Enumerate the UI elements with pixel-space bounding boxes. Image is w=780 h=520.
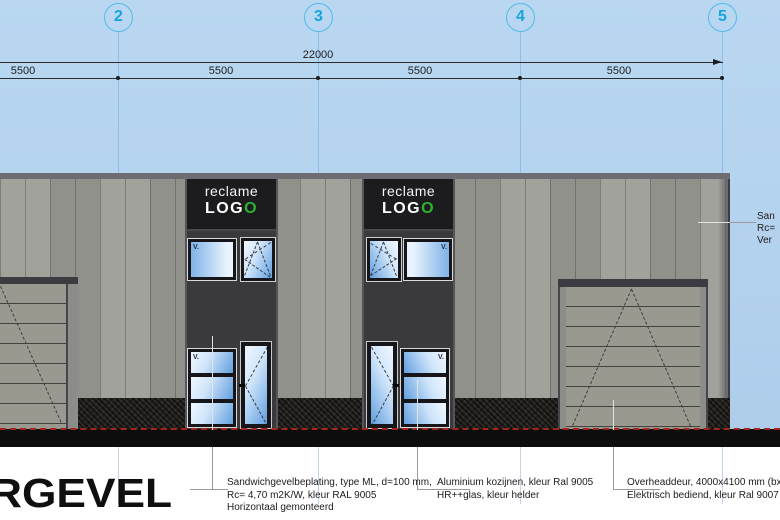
dimension-label-bay-3: 5500: [392, 65, 448, 77]
door-swing-mark: [371, 386, 393, 424]
annotation-overhead-door: Overheaddeur, 4000x4100 mm (bxh) Elektri…: [627, 477, 780, 502]
logo-green-o: O: [244, 200, 258, 217]
overhead-door-right-jamb-left: [558, 287, 566, 430]
glass: [404, 377, 446, 398]
sign-text-logo: LOGO: [187, 200, 276, 218]
dimension-label-bay-4: 5500: [591, 65, 647, 77]
glass: [245, 346, 267, 424]
drawing-title: RGEVEL: [0, 470, 172, 517]
glass: [371, 346, 393, 424]
logo-green-o: O: [421, 200, 435, 217]
plinth: [708, 398, 730, 430]
annotation-aluminium-frames: Aluminium kozijnen, kleur Ral 9005 HR++g…: [437, 477, 593, 502]
plinth: [278, 398, 362, 430]
door-swing-mark: [371, 347, 393, 387]
glass: V.: [407, 242, 449, 277]
leader-line: [613, 447, 614, 490]
dimension-tick: [518, 76, 522, 80]
annotation-line: Rc=: [757, 223, 775, 235]
ground-band: [0, 429, 780, 447]
leader-line: [730, 222, 756, 223]
door-handle: [239, 384, 245, 387]
annotation-line: HR++glas, kleur helder: [437, 490, 593, 503]
overhead-door-right-lintel: [558, 279, 708, 287]
overhead-door-right: [566, 287, 700, 430]
glass: V.: [191, 242, 233, 277]
dimension-label-bay-2: 5500: [193, 65, 249, 77]
grid-line-5: [722, 31, 723, 173]
leader-line: [212, 447, 213, 490]
sign-text-logo: LOGO: [364, 200, 453, 218]
upper-window-vent: [366, 237, 402, 282]
dimension-label-total: 22000: [288, 49, 348, 61]
grid-bubble-5: 5: [708, 3, 737, 32]
grid-bubble-4: 4: [506, 3, 535, 32]
annotation-line: Horizontaal gemonteerd: [227, 502, 432, 515]
glass: V.: [404, 352, 446, 373]
entrance-section-1: reclame LOGO V. V.: [185, 179, 278, 430]
dimension-label-bay-1: 5500: [0, 65, 51, 77]
overhead-door-right-jamb-right: [700, 287, 708, 430]
door-swing-mark: [245, 386, 267, 424]
dimension-line-bays: [0, 78, 723, 79]
plinth: [78, 398, 185, 430]
entry-door: [366, 341, 398, 429]
leader-line: [698, 222, 730, 223]
glass: [404, 403, 446, 424]
sign-board: reclame LOGO: [364, 179, 453, 231]
grid-bubble-3: 3: [304, 3, 333, 32]
overhead-door-left-jamb: [66, 284, 78, 430]
annotation-right-truncated: San Rc= Ver: [757, 211, 775, 247]
annotation-line: Elektrisch bediend, kleur Ral 9007: [627, 490, 780, 503]
door-handle: [393, 384, 399, 387]
overhead-door-left-lintel: [0, 277, 78, 284]
dimension-tick: [316, 76, 320, 80]
upper-window-fixed: V.: [187, 238, 237, 281]
annotation-line: Aluminium kozijnen, kleur Ral 9005: [437, 477, 593, 490]
annotation-sandwich-panel: Sandwichgevelbeplating, type ML, d=100 m…: [227, 477, 432, 515]
vent-label: V.: [441, 244, 447, 251]
sign-text-reclame: reclame: [187, 183, 276, 199]
leader-line: [190, 489, 228, 490]
dimension-tick: [720, 76, 724, 80]
leader-line: [212, 336, 213, 430]
annotation-line: Rc= 4,70 m2K/W, kleur RAL 9005: [227, 490, 432, 503]
annotation-line: Sandwichgevelbeplating, type ML, d=100 m…: [227, 477, 432, 490]
vent-label: V.: [193, 354, 199, 361]
sign-board: reclame LOGO: [187, 179, 276, 231]
upper-window-fixed: V.: [403, 238, 453, 281]
dimension-tick: [116, 76, 120, 80]
lower-window: V.: [400, 348, 450, 428]
dimension-line-total: [0, 62, 723, 63]
grid-bubble-2: 2: [104, 3, 133, 32]
glass: [370, 241, 398, 278]
vent-label: V.: [438, 354, 444, 361]
annotation-line: Ver: [757, 235, 775, 247]
upper-window-vent: [240, 237, 276, 282]
glass: [244, 241, 272, 278]
vent-label: V.: [193, 244, 199, 251]
door-swing-mark: [245, 347, 267, 387]
entry-door: [240, 341, 272, 429]
plinth: [455, 398, 558, 430]
facade-right-corner: [718, 179, 730, 430]
glass-panes: V.: [404, 352, 446, 424]
ground-level-line: [0, 428, 780, 430]
grid-line-4: [520, 31, 521, 173]
sign-text-reclame: reclame: [364, 183, 453, 199]
grid-line-2: [118, 31, 119, 173]
leader-line: [417, 380, 418, 430]
leader-line: [613, 400, 614, 430]
elevation-drawing: 2 3 4 5 22000 5500 5500 5500 5500 reclam…: [0, 0, 780, 520]
dimension-arrow: [713, 59, 722, 65]
entrance-section-2: reclame LOGO V.: [362, 179, 455, 430]
annotation-line: San: [757, 211, 775, 223]
annotation-line: Overheaddeur, 4000x4100 mm (bxh): [627, 477, 780, 490]
